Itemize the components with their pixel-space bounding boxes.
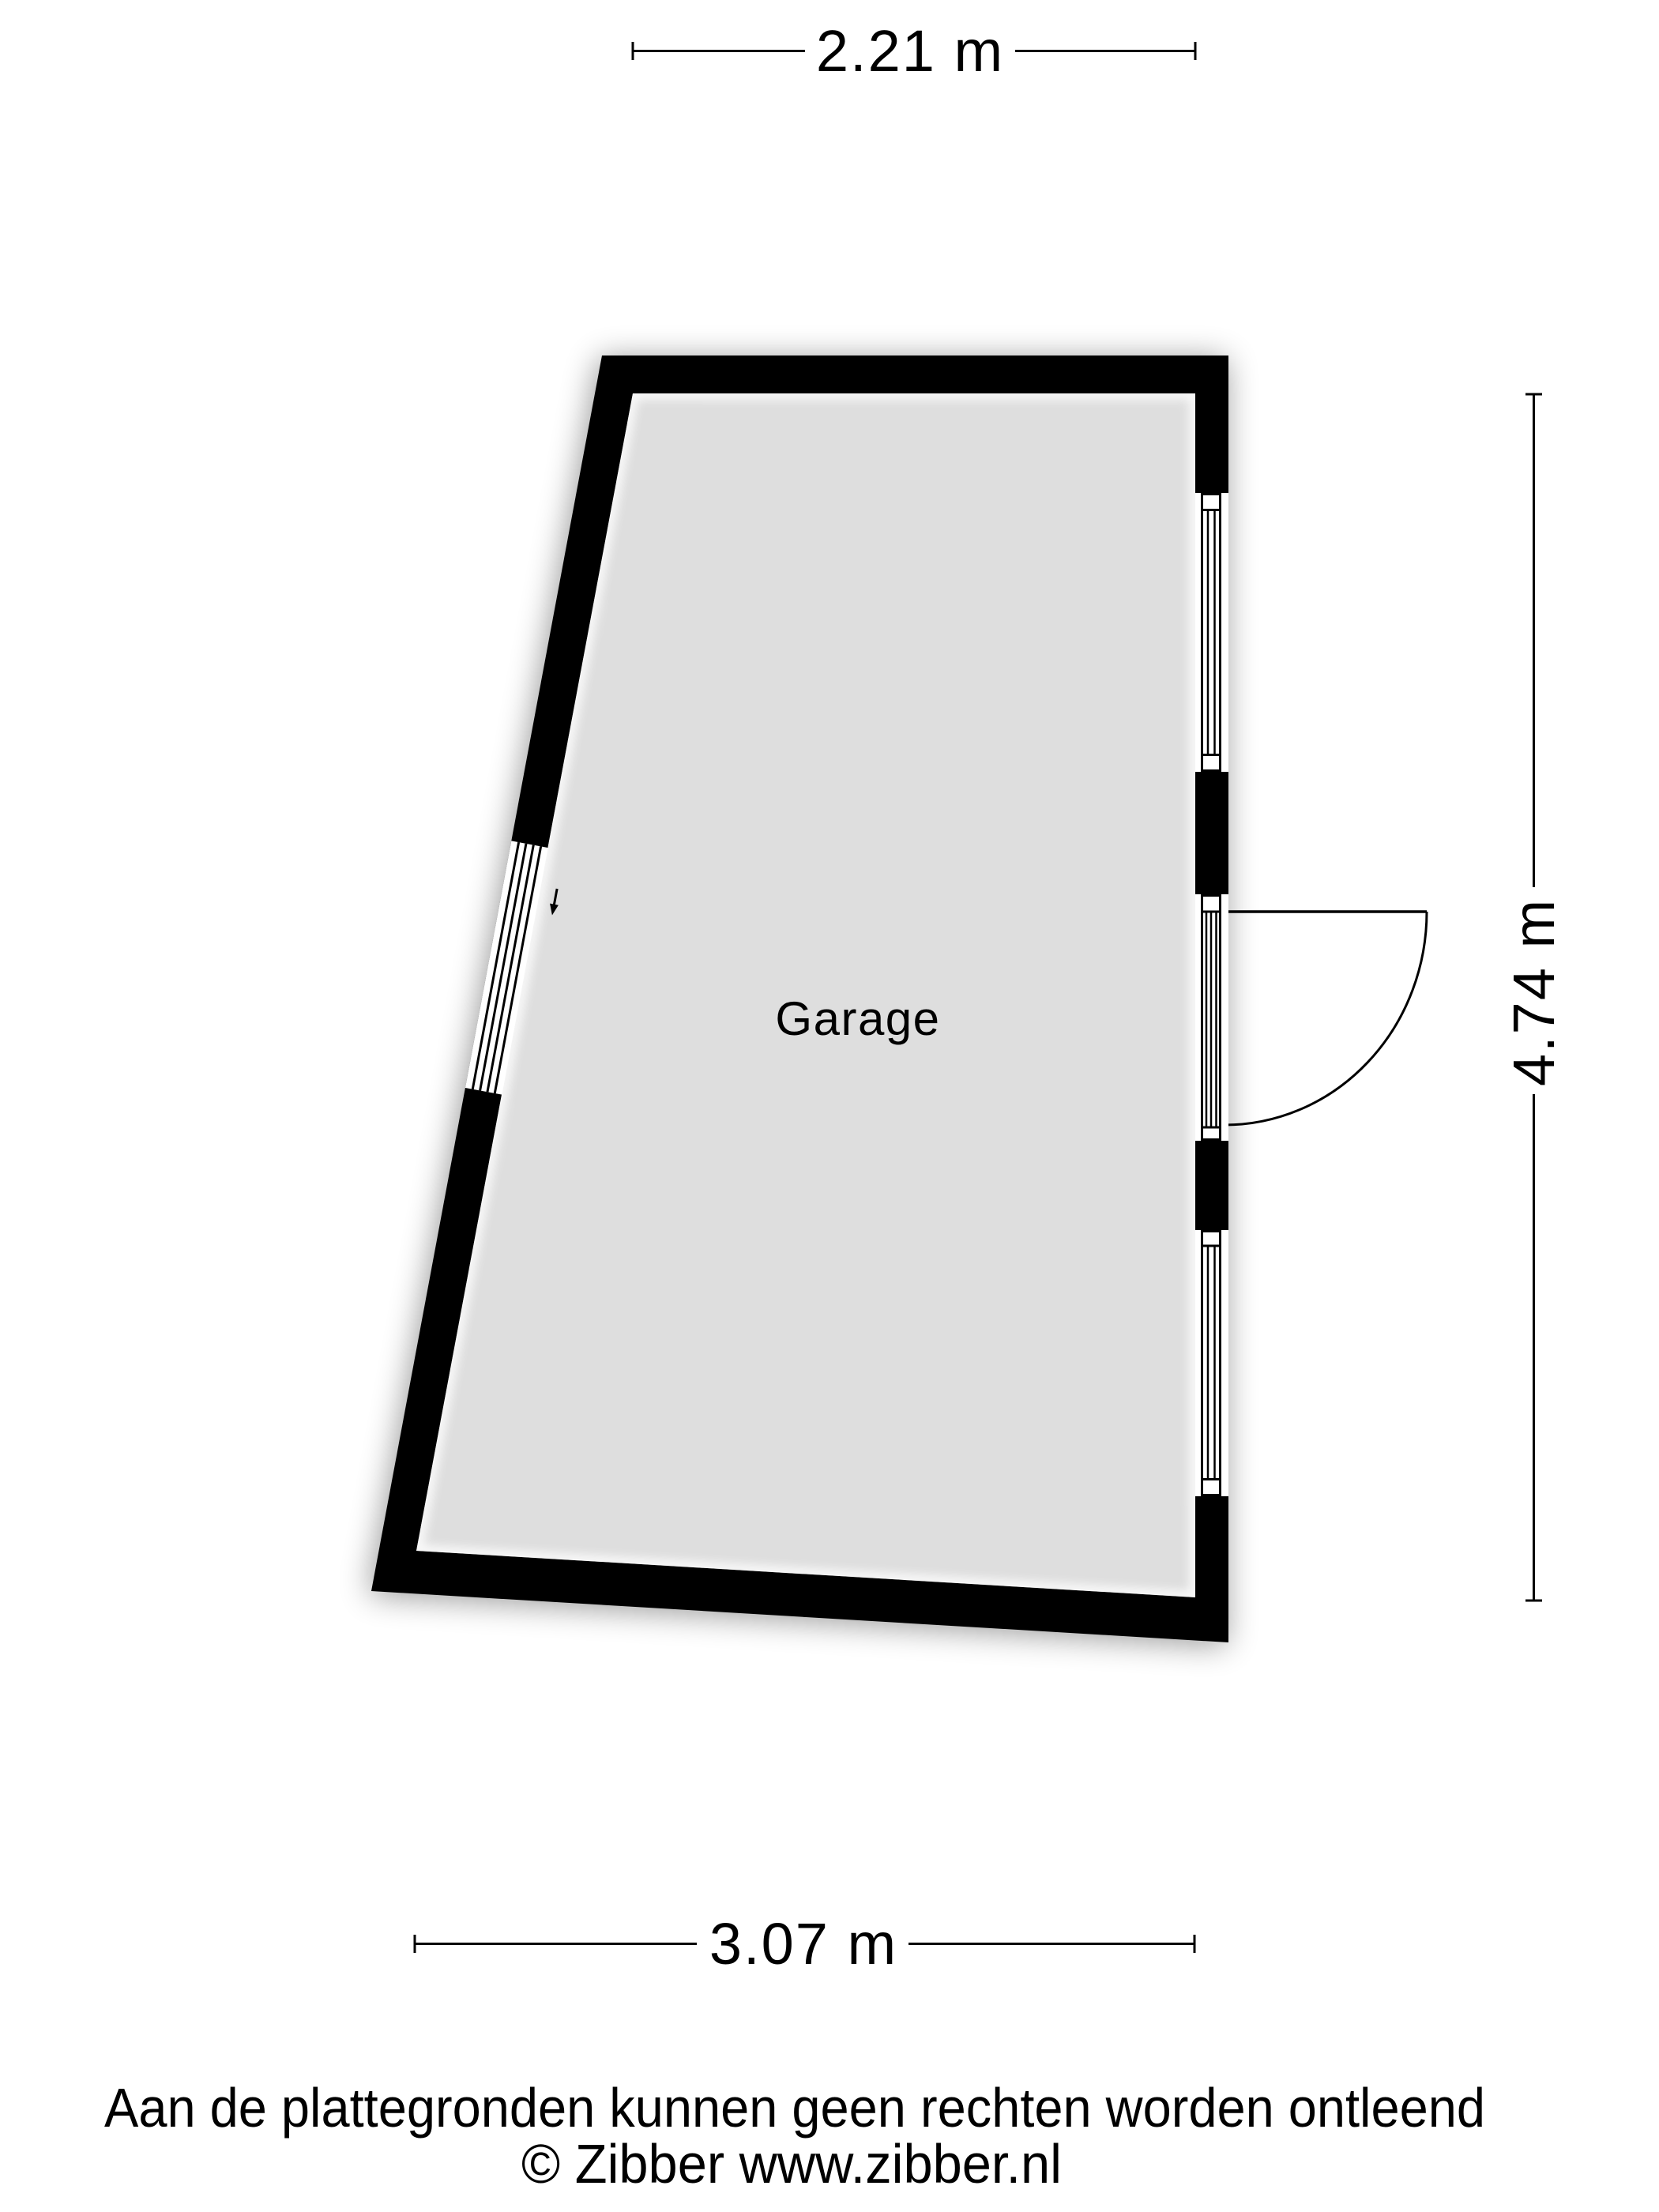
svg-text:Garage: Garage bbox=[775, 992, 940, 1045]
svg-text:2.21 m: 2.21 m bbox=[816, 18, 1004, 84]
svg-text:Aan de plattegronden kunnen ge: Aan de plattegronden kunnen geen rechten… bbox=[104, 2077, 1485, 2139]
svg-text:© Zibber www.zibber.nl: © Zibber www.zibber.nl bbox=[521, 2133, 1062, 2195]
svg-text:4.74 m: 4.74 m bbox=[1501, 898, 1567, 1086]
svg-text:3.07 m: 3.07 m bbox=[709, 1911, 897, 1977]
